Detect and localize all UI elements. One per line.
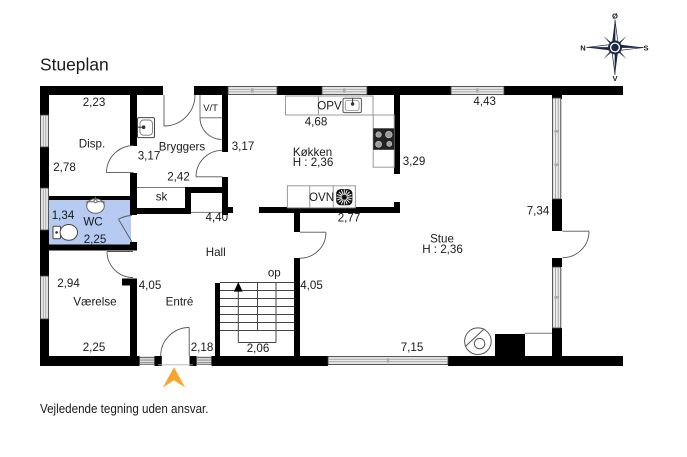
svg-text:2,18: 2,18	[191, 341, 214, 354]
svg-text:2,06: 2,06	[247, 342, 270, 355]
svg-text:4,05: 4,05	[300, 279, 323, 292]
svg-text:2,77: 2,77	[338, 212, 361, 225]
svg-text:Disp.: Disp.	[79, 138, 105, 151]
svg-text:V/T: V/T	[203, 103, 218, 114]
svg-text:2,23: 2,23	[83, 96, 106, 109]
svg-text:H : 2,36: H : 2,36	[293, 156, 334, 169]
svg-text:OPV: OPV	[317, 100, 342, 113]
svg-text:4,43: 4,43	[473, 95, 496, 108]
svg-text:4,68: 4,68	[305, 116, 328, 129]
svg-text:7,34: 7,34	[527, 205, 550, 218]
svg-text:2,25: 2,25	[84, 233, 107, 246]
svg-text:7,15: 7,15	[401, 341, 424, 354]
svg-text:4,40: 4,40	[206, 211, 229, 224]
svg-text:sk: sk	[156, 191, 168, 204]
svg-text:3,17: 3,17	[138, 150, 161, 163]
svg-text:2,94: 2,94	[57, 277, 80, 290]
svg-text:Entré: Entré	[166, 296, 194, 309]
svg-text:3,17: 3,17	[232, 140, 255, 153]
svg-text:4,05: 4,05	[139, 279, 162, 292]
svg-text:N: N	[580, 43, 585, 52]
svg-text:2,78: 2,78	[53, 161, 76, 174]
svg-text:1,34: 1,34	[52, 209, 75, 222]
svg-text:Bryggers: Bryggers	[159, 140, 206, 153]
svg-text:2,42: 2,42	[167, 171, 190, 184]
svg-text:Vejledende tegning uden ansvar: Vejledende tegning uden ansvar.	[40, 401, 209, 416]
svg-text:WC: WC	[83, 215, 102, 228]
svg-text:op: op	[268, 267, 281, 280]
svg-text:OVN: OVN	[309, 191, 334, 204]
svg-text:Ø: Ø	[612, 11, 618, 20]
svg-text:H : 2,36: H : 2,36	[422, 243, 463, 256]
svg-text:S: S	[643, 43, 648, 52]
svg-text:Værelse: Værelse	[73, 296, 116, 309]
svg-text:2,25: 2,25	[83, 341, 106, 354]
svg-text:Hall: Hall	[206, 246, 226, 259]
svg-text:3,29: 3,29	[403, 155, 426, 168]
svg-text:Stueplan: Stueplan	[40, 55, 109, 75]
